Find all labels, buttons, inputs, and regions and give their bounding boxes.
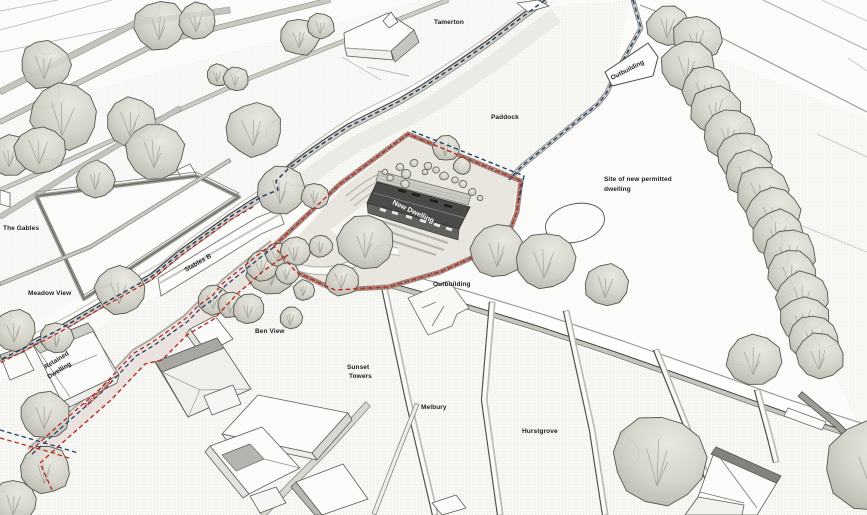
svg-text:Meadow View: Meadow View	[28, 290, 72, 297]
svg-text:Site of new permitted: Site of new permitted	[604, 176, 672, 183]
svg-text:Hurstgrove: Hurstgrove	[522, 428, 558, 435]
svg-text:Paddock: Paddock	[491, 114, 519, 121]
svg-text:dwelling: dwelling	[604, 186, 631, 193]
svg-text:Towers: Towers	[349, 373, 372, 380]
svg-text:Tamerton: Tamerton	[434, 19, 464, 26]
svg-text:Melbury: Melbury	[421, 404, 447, 411]
svg-text:Outbuilding: Outbuilding	[433, 281, 471, 288]
svg-text:The Gables: The Gables	[3, 225, 39, 232]
svg-text:Sunset: Sunset	[347, 364, 370, 371]
svg-text:Ben View: Ben View	[255, 328, 285, 335]
